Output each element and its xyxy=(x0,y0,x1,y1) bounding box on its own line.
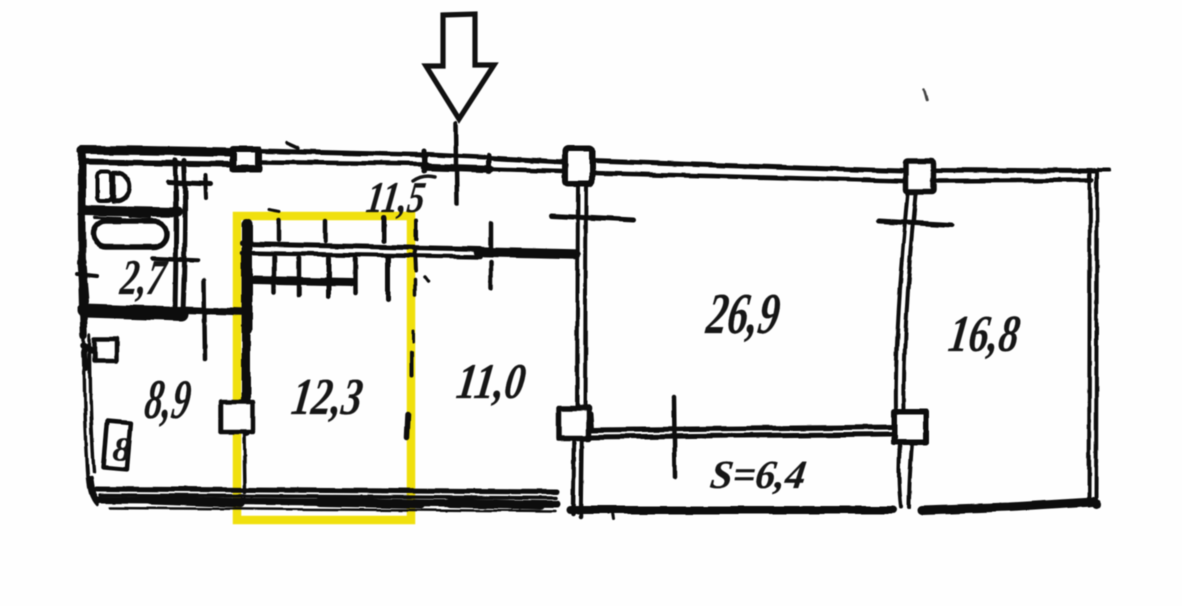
svg-text:16,8: 16,8 xyxy=(945,305,1023,363)
svg-text:11,0: 11,0 xyxy=(453,353,529,409)
svg-text:12,3: 12,3 xyxy=(288,368,366,426)
svg-text:8,9: 8,9 xyxy=(141,369,195,431)
svg-text:26,9: 26,9 xyxy=(702,281,784,346)
svg-text:2,7: 2,7 xyxy=(117,249,171,305)
svg-text:S=6,4: S=6,4 xyxy=(708,452,809,497)
svg-text:8: 8 xyxy=(111,431,132,469)
svg-text:11,5: 11,5 xyxy=(364,173,429,222)
